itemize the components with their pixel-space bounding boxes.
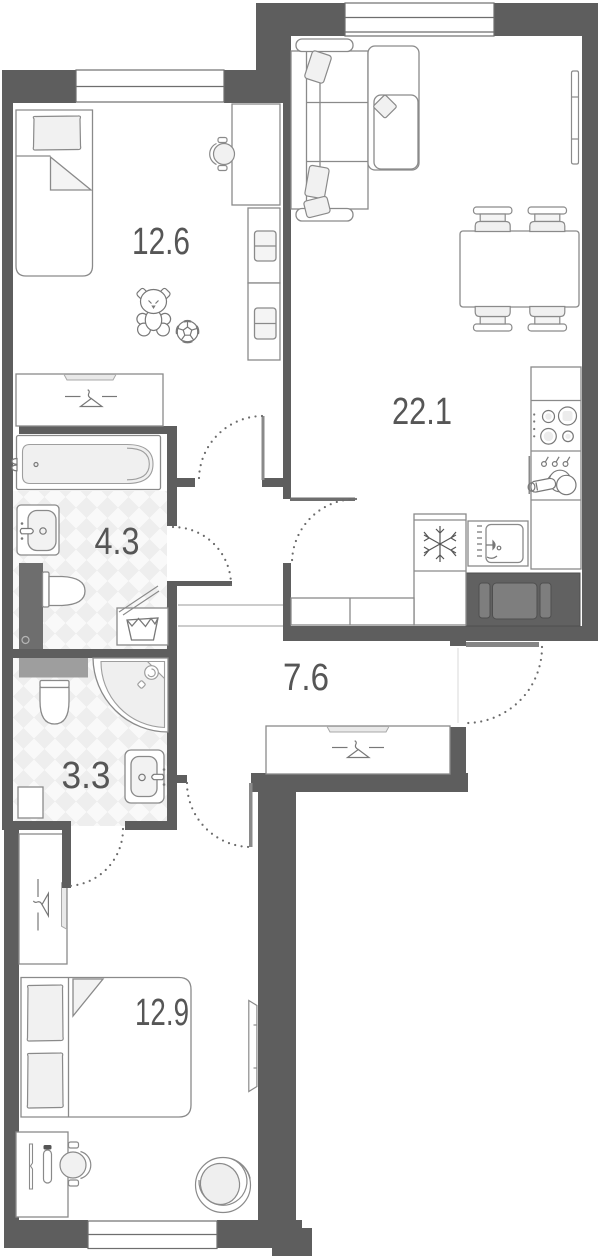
svg-text:3.3: 3.3 <box>62 755 111 797</box>
svg-text:12.9: 12.9 <box>135 992 189 1034</box>
svg-text:12.6: 12.6 <box>132 221 190 263</box>
svg-text:7.6: 7.6 <box>283 657 329 699</box>
svg-text:22.1: 22.1 <box>392 391 452 433</box>
svg-text:4.3: 4.3 <box>95 521 140 563</box>
